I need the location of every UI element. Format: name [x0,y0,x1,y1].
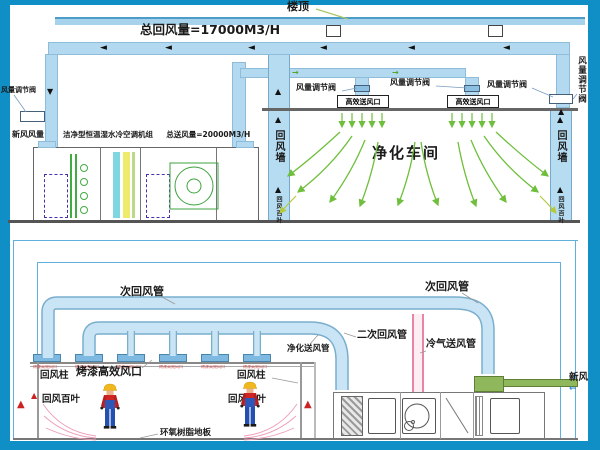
return-up-arrow-icon: ▲ [17,400,25,410]
ahu-fan-door [402,398,436,434]
ceiling-diffuser [243,354,271,362]
epoxy-floor-label: 环氧树脂地板 [160,429,211,438]
flow-arrow-right-icon: → [292,69,299,77]
damper-label: 风量调节阀 [390,79,430,87]
flow-arrow-left-icon: ◄ [503,44,510,53]
cold-supply-label: 冷气送风管 [426,340,476,350]
roof-bar [55,17,585,25]
flow-arrow-up-icon: ▲ [557,116,563,124]
damper-valve [464,85,480,92]
diffuser-tag: 烤漆高效风口 [243,365,271,369]
roof-vent [326,25,341,37]
diffuser-tag: 烤漆高效风口 [159,365,187,369]
hepa-outlet-box: 高效送风口 [447,95,499,108]
flow-arrow-right-icon: → [392,69,399,77]
left-return-riser [45,54,58,148]
purified-supply-label: 净化送风管 [287,345,330,354]
ahu-door [368,398,396,434]
ceiling-diffuser [201,354,229,362]
return-louver-label: 回风百叶 [228,395,266,405]
main-return-duct [48,42,570,55]
flow-arrow-left-icon: ◄ [100,44,107,53]
flow-arrow-up-icon: ▲ [557,186,563,194]
flow-arrow-down-icon: ▼ [47,88,53,96]
hepa-outlet-label: 高效送风口 [456,97,491,107]
return-louver-label: 回风百叶 [42,395,80,405]
roof-vent [488,25,503,37]
ahu-filter-section [123,152,130,218]
fresh-air-valve [20,111,45,122]
ahu-divider [216,148,217,221]
fresh-air-volume-label: 新风风量 [12,131,44,139]
return-louver-label: 回风百叶 [557,196,563,224]
return-wall-label: 回风墙 [273,130,283,163]
return-up-arrow-icon: ▲ [304,400,312,410]
ahu-divider [400,392,401,439]
ahu-coil-slats [475,396,483,436]
damper-valve [354,85,370,92]
fresh-air-duct [500,379,578,387]
cold-supply-duct [412,314,424,392]
workshop-label: 净化车间 [372,146,440,161]
return-wall-label: 回风墙 [555,130,565,163]
workshop-ceiling [262,108,578,111]
structure-line [37,262,560,263]
ahu-spray-nozzle [80,206,88,214]
return-column-label: 回风柱 [40,371,69,381]
top-floor-line [8,220,580,223]
ahu-door [490,398,520,434]
flow-arrow-left-icon: ◄ [165,44,172,53]
fresh-air-hood [474,376,504,392]
diffuser-tag: 烤漆高效风口 [201,365,229,369]
return-louver-label: 回风百叶 [275,196,281,224]
room-wall-left [37,362,39,440]
damper-label-right: 风量调节阀 [577,56,586,104]
fresh-air-label: 新风 [569,373,588,383]
ahu-access-door [146,174,170,218]
room-wall-right-outer [314,362,316,440]
return-wall-left [268,55,290,108]
ahu-coil-line [75,154,77,218]
ahu-outlet-stub [236,141,254,148]
ahu-divider [100,148,101,221]
flow-arrow-left-icon: ◄ [408,44,415,53]
baked-hepa-outlet-label: 烤漆高效风口 [76,366,142,377]
flow-arrow-left-icon: ◄ [248,44,255,53]
flow-arrow-up-icon: ▲ [275,88,281,96]
structure-line [560,262,561,440]
secondary-return-label: 次回风管 [425,281,469,292]
ahu-filter-line [132,152,135,218]
damper-label: 风量调节阀 [296,84,336,92]
ahu-divider [440,392,441,439]
return-column-label: 回风柱 [237,371,266,381]
ceiling-diffuser [75,354,103,362]
damper-label: 风量调节阀 [487,81,527,89]
room-ceiling [30,362,315,364]
ahu-cooling-section [113,152,120,218]
ahu-name: 洁净型恒温湿水冷空调机组 [63,130,153,139]
ahu-inlet-stub [38,141,56,148]
ceiling-diffuser [159,354,187,362]
ahu-divider [473,392,474,439]
roof-label: 楼顶 [287,1,309,12]
ahu-spray-nozzle [80,192,88,200]
damper-label-left: 风量调节阀 [1,87,36,94]
ahu-spray-nozzle [80,164,88,172]
ceiling-diffuser [33,354,61,362]
hepa-outlet-box: 高效送风口 [337,95,389,108]
ahu-access-door [44,174,68,218]
ahu-total-supply: 总送风量=20000M3/H [166,130,250,139]
structure-line [13,240,14,440]
ceiling-diffuser [117,354,145,362]
return-up-arrow-icon: ▲ [31,392,37,400]
ahu-title: 洁净型恒温湿水冷空调机组 总送风量=20000M3/H [63,131,250,139]
room-wall-right [300,362,302,440]
damper-valve [549,94,573,104]
structure-line [13,240,578,241]
fresh-in-arrow-icon: ← [569,385,577,394]
ahu-divider [140,148,141,221]
hvac-diagram: 楼顶 总回风量=17000M3/H ◄ ◄ ◄ ◄ ◄ ◄ ▼ ▲ 风量调节阀 … [0,0,600,450]
hepa-outlet-label: 高效送风口 [346,97,381,107]
ahu-coil-line [70,154,72,218]
flow-arrow-left-icon: ◄ [320,44,327,53]
ahu-filter-block [341,396,363,436]
diffuser-tag: 烤漆高效风口 [33,365,61,369]
ahu-spray-nozzle [80,178,88,186]
second-stage-return-label: 二次回风管 [357,331,407,341]
secondary-return-label: 次回风管 [120,286,164,297]
flow-arrow-up-icon: ▲ [275,116,281,124]
total-return-title: 总回风量=17000M3/H [140,24,280,37]
structure-line [575,240,576,440]
flow-arrow-up-icon: ▲ [275,186,281,194]
